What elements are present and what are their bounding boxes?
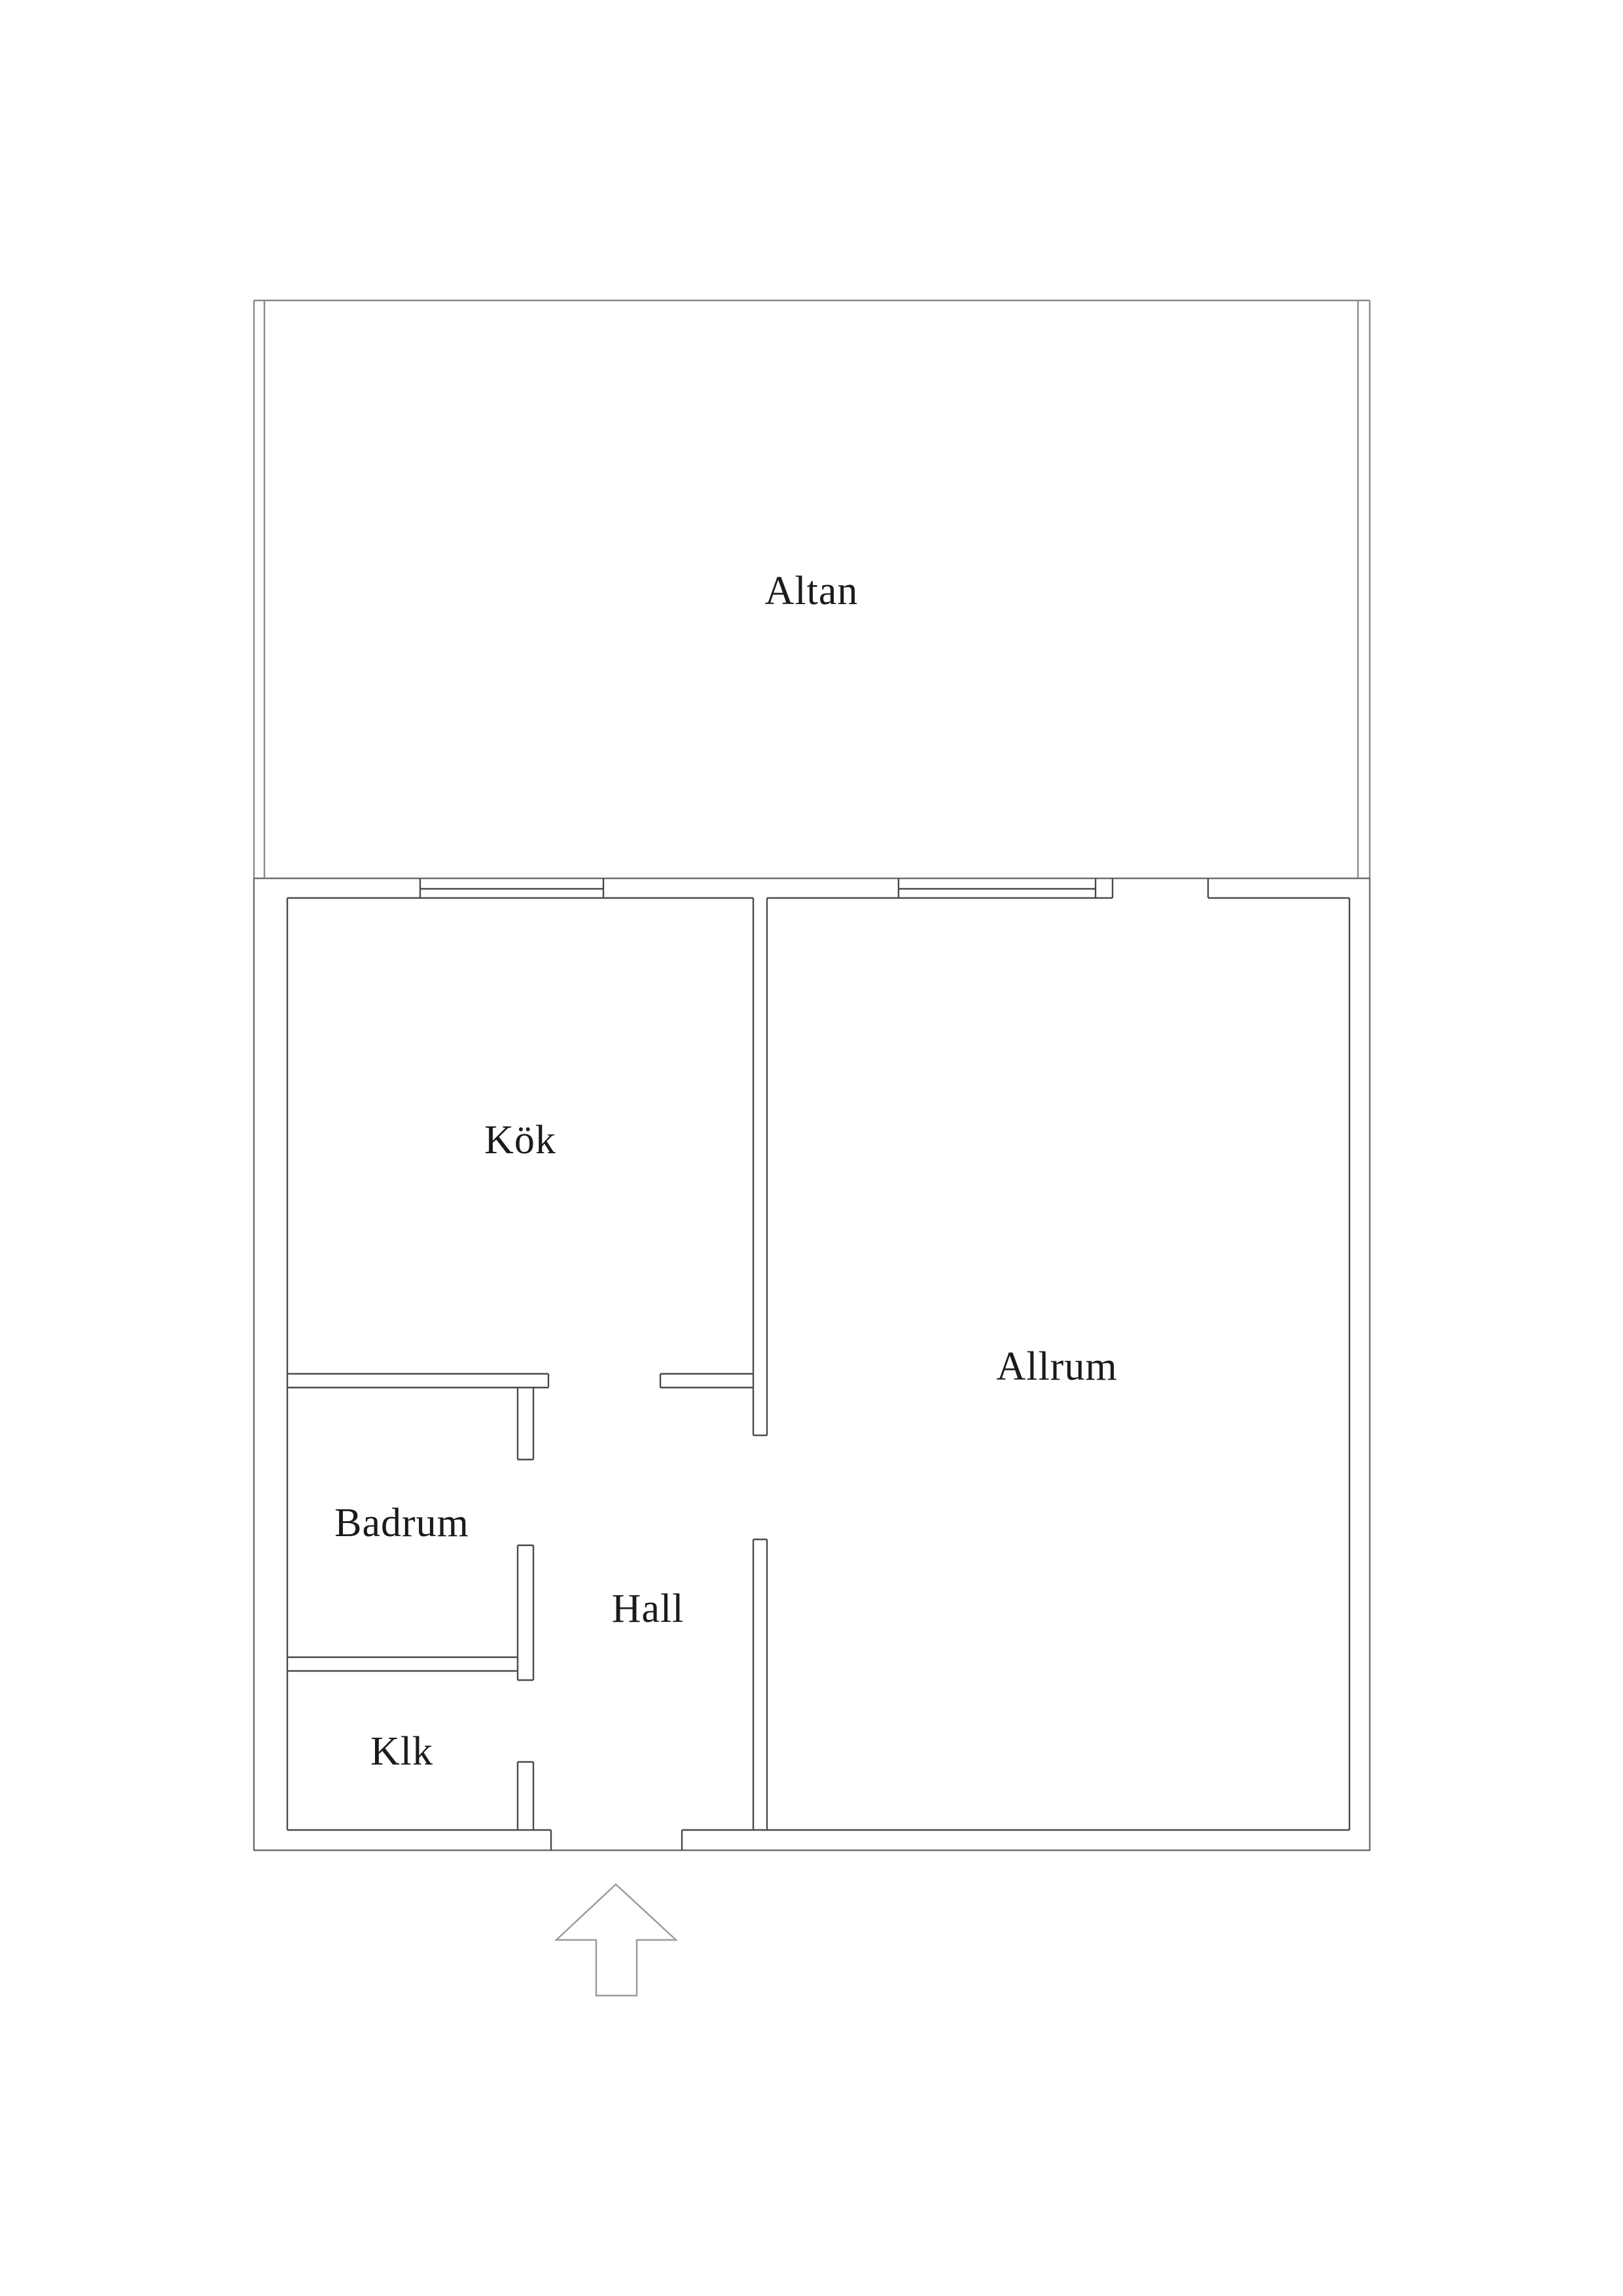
room-label-kok: Kök	[484, 1120, 556, 1160]
room-label-hall: Hall	[612, 1588, 685, 1629]
entrance-arrow-icon	[556, 1884, 676, 1996]
room-label-badrum: Badrum	[334, 1503, 469, 1543]
room-label-allrum: Allrum	[996, 1346, 1117, 1387]
room-label-altan: Altan	[765, 571, 859, 611]
floorplan-svg	[0, 0, 1623, 2296]
floor-plan: Altan Kök Allrum Badrum Hall Klk	[0, 0, 1623, 2296]
room-label-klk: Klk	[370, 1731, 433, 1772]
